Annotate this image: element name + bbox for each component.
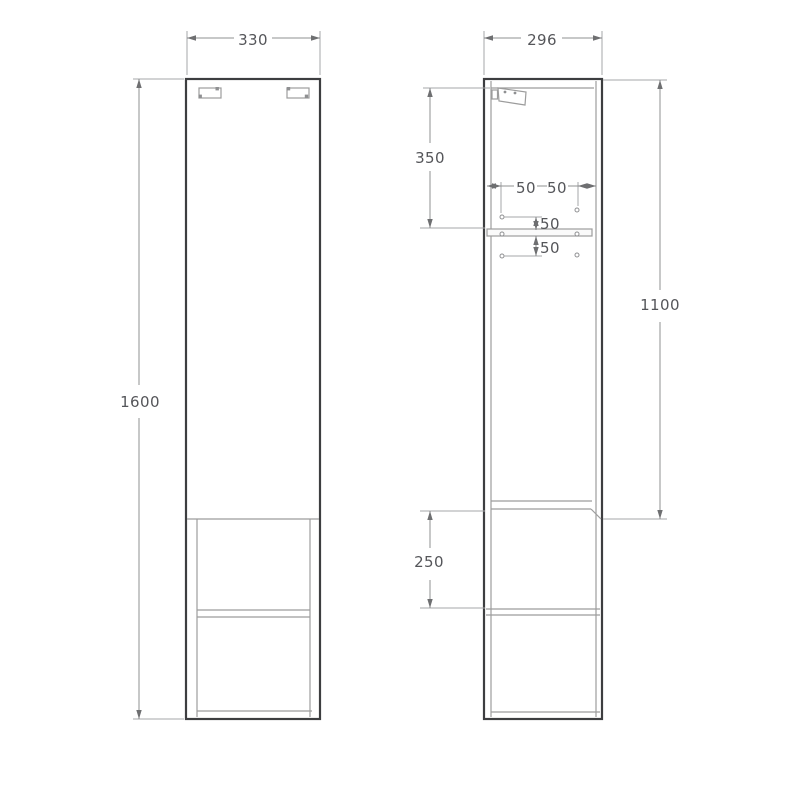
dim-label-50-below: 50 [540, 239, 560, 257]
pin-hole [575, 232, 579, 236]
dim-top-to-shelf: 350 [415, 88, 490, 228]
dim-label-50-above: 50 [540, 215, 560, 233]
dim-label-350: 350 [415, 149, 445, 167]
dim-label-250: 250 [414, 553, 444, 571]
arrowhead [427, 599, 432, 608]
bracket-screw [216, 87, 219, 90]
bracket-screw [305, 95, 308, 98]
arrowhead [136, 79, 141, 88]
cabinet-technical-drawing: 330 1600 296 350 [0, 0, 800, 800]
bracket-screw [199, 95, 202, 98]
pin-hole [500, 254, 504, 258]
dim-label-1600: 1600 [120, 393, 160, 411]
dim-top-to-door-bottom: 1100 [603, 80, 680, 519]
dim-label-296: 296 [527, 31, 557, 49]
arrowhead [427, 219, 432, 228]
bracket-screw [504, 91, 507, 94]
bracket-screw [514, 92, 517, 95]
dim-front-height: 1600 [120, 79, 184, 719]
dim-label-1100: 1100 [640, 296, 680, 314]
dim-label-330: 330 [238, 31, 268, 49]
pin-hole [500, 215, 504, 219]
pin-hole [500, 232, 504, 236]
side-view [484, 79, 602, 719]
dim-label-50-left: 50 [516, 179, 536, 197]
front-view [186, 79, 320, 719]
arrowhead [593, 35, 602, 40]
arrowhead [427, 511, 432, 520]
front-carcass [186, 79, 320, 719]
pin-hole [575, 208, 579, 212]
dim-front-width: 330 [187, 31, 320, 75]
dim-door-bottom-to-shelf: 250 [414, 511, 485, 608]
side-carcass [484, 79, 602, 719]
arrowhead [484, 35, 493, 40]
dim-label-50-right: 50 [547, 179, 567, 197]
arrowhead [187, 35, 196, 40]
dim-side-depth: 296 [484, 31, 602, 75]
bracket-screw [287, 87, 290, 90]
pin-hole [575, 253, 579, 257]
arrowhead [427, 88, 432, 97]
arrowhead [311, 35, 320, 40]
arrowhead [136, 710, 141, 719]
arrowhead [657, 80, 662, 89]
drawing-canvas: 330 1600 296 350 [0, 0, 800, 800]
arrowhead [657, 510, 662, 519]
